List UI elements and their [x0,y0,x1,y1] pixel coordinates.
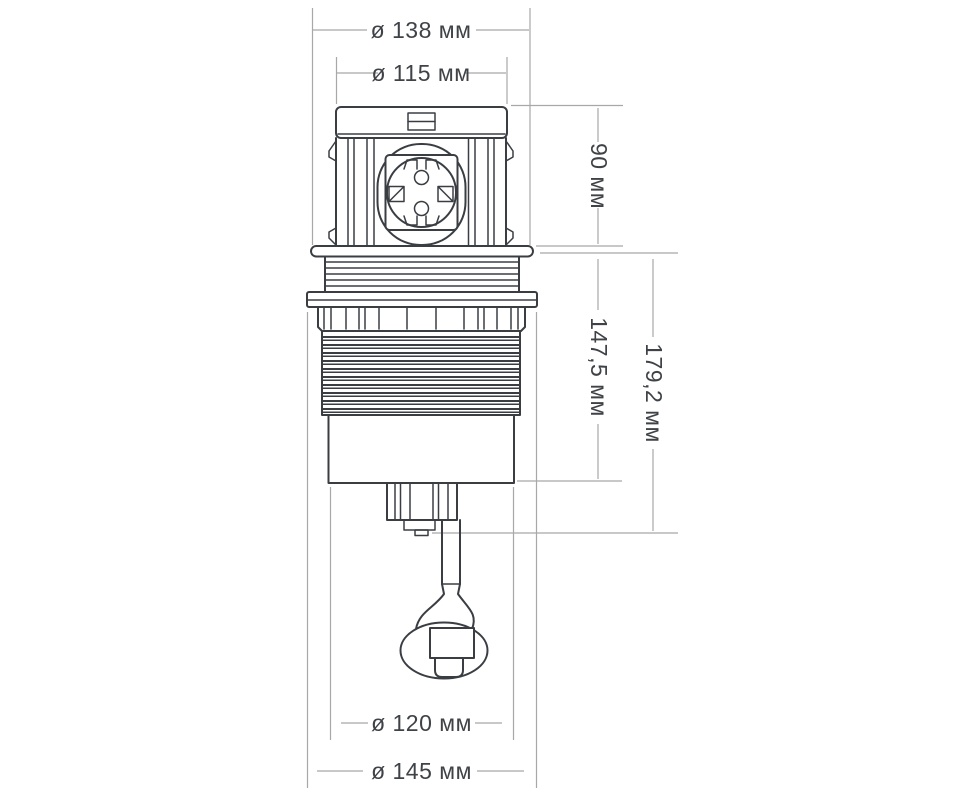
terminal-segments [395,483,448,520]
dimension-drawing-canvas: ø 138 мм ø 115 мм 90 мм 147,5 мм 179,2 м… [0,0,978,800]
dim-label-147-5: 147,5 мм [586,317,612,417]
cap [336,107,507,138]
ring-slots [324,307,518,329]
terminal-nub [415,530,428,536]
terminal-housing [387,483,457,520]
dim-label-115: ø 115 мм [371,60,470,86]
socket-module [378,144,466,245]
dim-label-179-2: 179,2 мм [641,343,667,443]
dim-label-90: 90 мм [586,143,612,209]
dim-label-138: ø 138 мм [371,17,472,43]
ring-outline [318,307,525,331]
locking-ring [318,307,525,331]
dim-label-145: ø 145 мм [371,758,472,784]
ribbed-neck [325,257,519,292]
dim-120-extension-lines [331,487,514,740]
plug-body-lower [435,658,463,677]
upper-collar [311,246,533,257]
mounting-flange [307,292,537,307]
threaded-cylinder [322,331,520,415]
dimension-lines [308,8,679,788]
terminal-block [387,483,457,536]
lower-cylinder [329,415,515,483]
dim-label-120: ø 120 мм [371,710,472,736]
socket-faceplate [386,155,458,230]
popup-socket-device [307,107,537,679]
plug-body-upper [430,628,474,658]
terminal-step [404,520,435,530]
power-cord-and-plug [401,520,488,679]
thread-sides [322,331,520,415]
cord [442,520,460,584]
neck-ribs [325,262,519,286]
popup-socket-drawing: ø 138 мм ø 115 мм 90 мм 147,5 мм 179,2 м… [0,0,978,800]
